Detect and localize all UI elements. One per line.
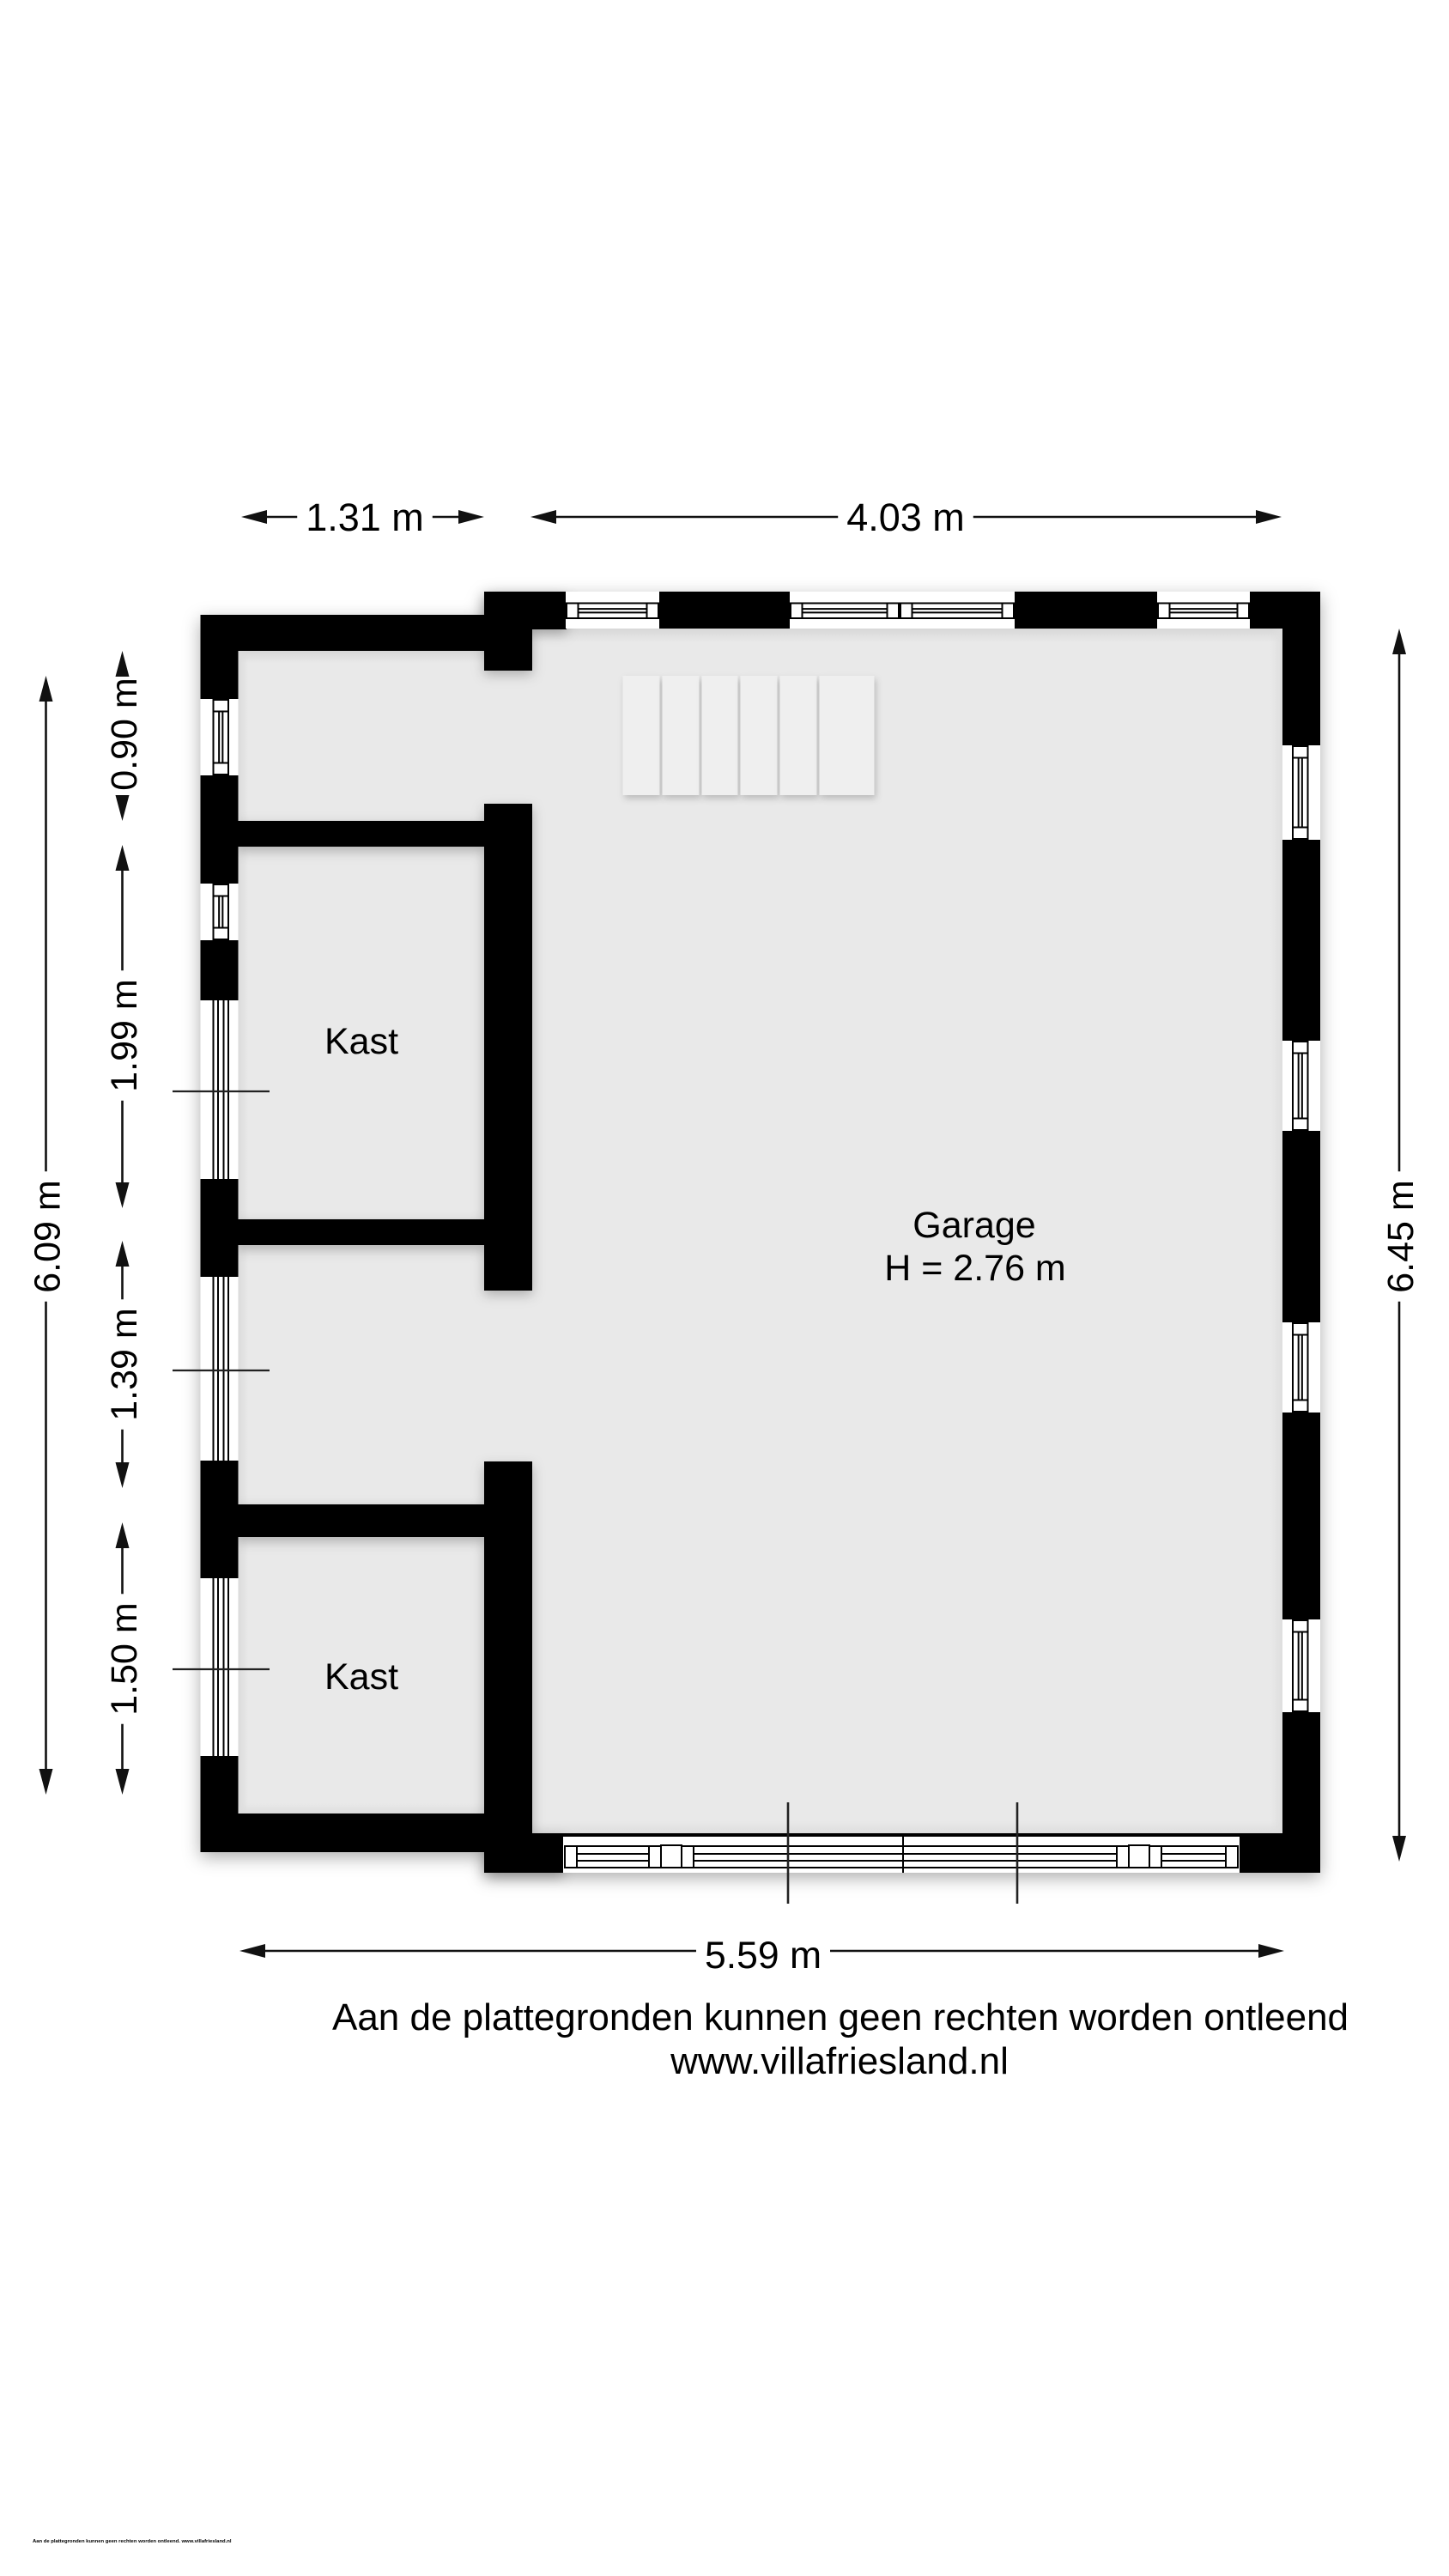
svg-text:5.59 m: 5.59 m <box>705 1935 822 1977</box>
svg-text:1.39 m: 1.39 m <box>104 1308 145 1420</box>
svg-text:H = 2.76 m: H = 2.76 m <box>884 1248 1066 1289</box>
svg-text:Kast: Kast <box>324 1656 398 1698</box>
svg-text:Garage: Garage <box>912 1205 1035 1246</box>
svg-text:1.50 m: 1.50 m <box>104 1602 145 1715</box>
svg-text:Kast: Kast <box>324 1021 398 1062</box>
svg-text:1.99 m: 1.99 m <box>104 979 145 1091</box>
svg-text:www.villafriesland.nl: www.villafriesland.nl <box>670 2040 1009 2082</box>
svg-text:Aan de plattegronden kunnen ge: Aan de plattegronden kunnen geen rechten… <box>33 2539 232 2544</box>
svg-text:1.31 m: 1.31 m <box>306 495 424 539</box>
svg-text:6.09 m: 6.09 m <box>27 1180 69 1292</box>
svg-text:4.03 m: 4.03 m <box>846 495 965 539</box>
svg-text:Aan de plattegronden kunnen ge: Aan de plattegronden kunnen geen rechten… <box>332 1996 1349 2038</box>
svg-text:0.90 m: 0.90 m <box>104 677 145 790</box>
svg-text:6.45 m: 6.45 m <box>1380 1180 1422 1292</box>
